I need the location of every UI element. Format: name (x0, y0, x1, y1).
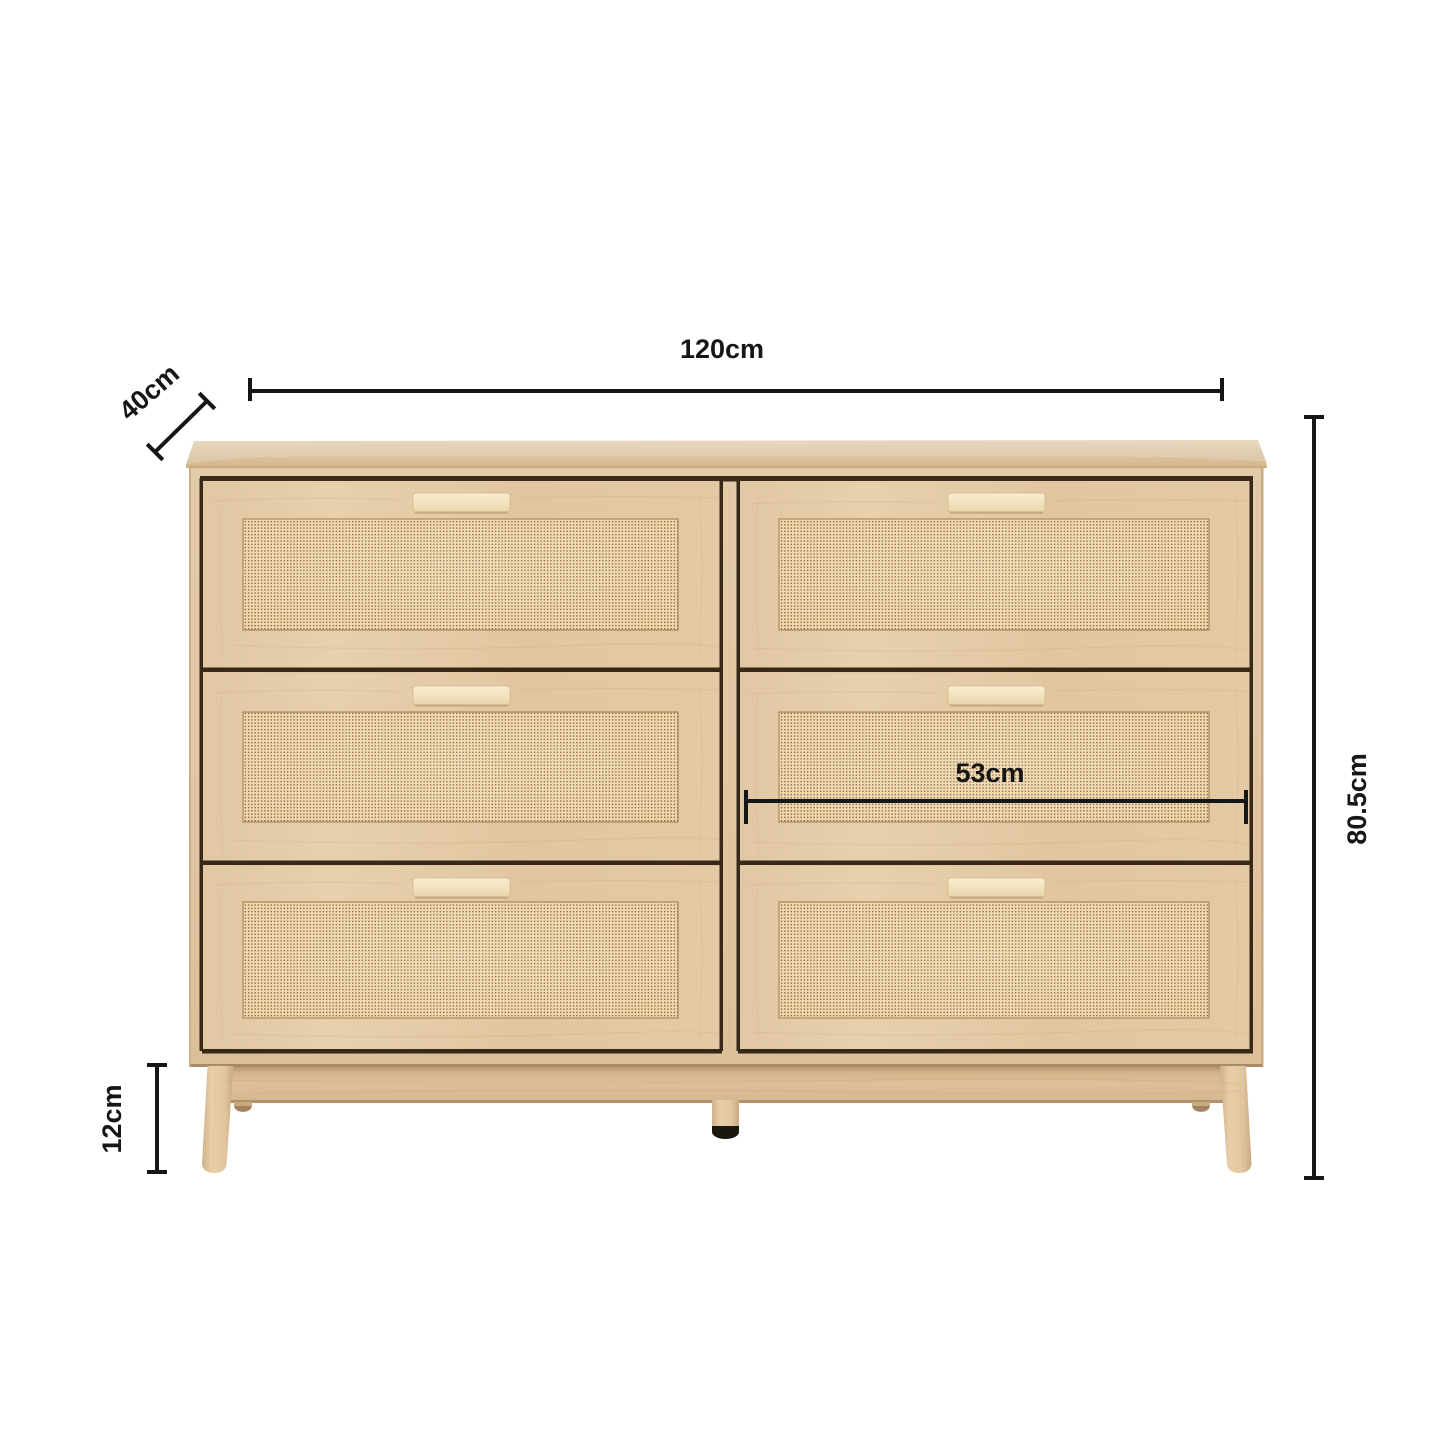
svg-text:12cm: 12cm (97, 1084, 127, 1153)
svg-text:120cm: 120cm (680, 334, 764, 364)
svg-text:53cm: 53cm (955, 758, 1024, 788)
svg-text:80.5cm: 80.5cm (1342, 753, 1372, 845)
